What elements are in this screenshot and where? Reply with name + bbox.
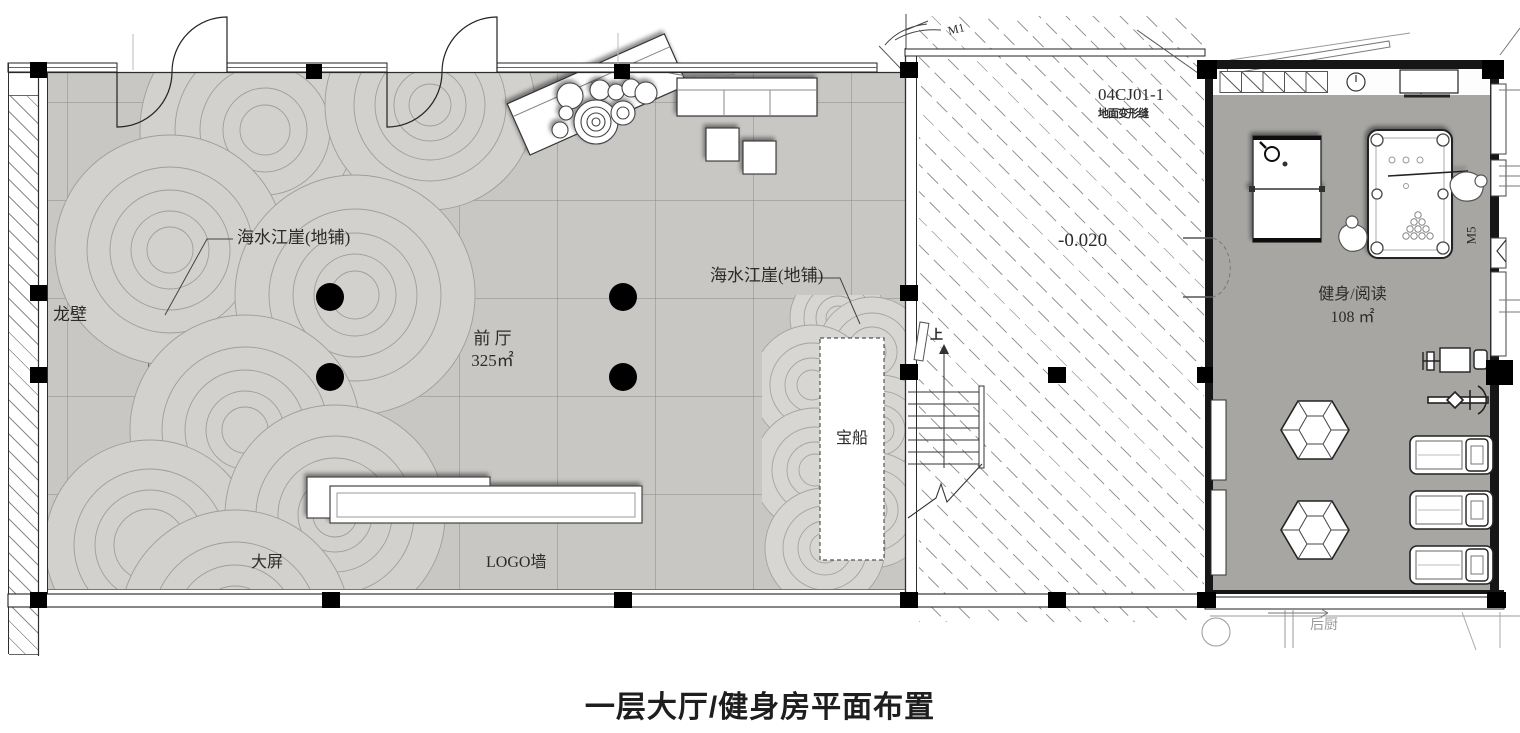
treasure-boat-label: 宝船	[820, 430, 884, 448]
logo-wall-label: LOGO墙	[486, 554, 546, 572]
detail-note-label: 地面变形缝	[1098, 108, 1148, 121]
pattern-label-right: 海水江崖(地铺)	[710, 266, 823, 286]
pingpong-table	[1249, 136, 1325, 242]
drawing-title: 一层大厅/健身房平面布置	[0, 691, 1520, 726]
pattern-label-left: 海水江崖(地铺)	[237, 228, 350, 248]
lobby-name-label: 前 厅	[430, 329, 555, 349]
person-standing	[1339, 216, 1367, 251]
person-playing-pool	[1450, 172, 1487, 201]
gym-cabinets	[1211, 400, 1226, 575]
treasure-boat-outline	[820, 338, 884, 560]
stairs-up-label: 上	[930, 328, 943, 343]
exercise-bike	[1428, 386, 1488, 414]
door-mark-m5: M5	[1465, 226, 1480, 244]
lobby-sofa	[507, 34, 817, 155]
treadmill-1	[1410, 436, 1493, 474]
treadmill-3	[1410, 546, 1493, 584]
bookshelf	[1220, 72, 1328, 93]
hex-table-2	[1281, 501, 1349, 559]
reception-desk	[307, 477, 642, 523]
kitchen-label: 后厨	[1310, 618, 1338, 634]
big-screen-label: 大屏	[251, 554, 283, 572]
kitchen-fragments	[1202, 609, 1520, 650]
floor-plan-drawing: 海水江崖(地铺) 龙壁 前 厅 325㎡ 海水江崖(地铺) 宝船 大屏 LOGO…	[0, 0, 1520, 733]
weight-bench	[1423, 348, 1487, 372]
treadmill-2	[1410, 491, 1493, 529]
stairs	[908, 322, 984, 518]
lobby-area-label: 325㎡	[430, 351, 555, 371]
detail-code-label: 04CJ01-1	[1098, 85, 1164, 105]
dragon-wall-label: 龙壁	[53, 305, 87, 325]
gym-name-label: 健身/阅读	[1290, 286, 1415, 304]
plan-linework	[0, 0, 1520, 733]
gym-area-label: 108 ㎡	[1290, 309, 1415, 327]
tv-icon	[1400, 70, 1458, 96]
clock-icon	[1347, 73, 1365, 91]
side-tables	[706, 128, 776, 174]
elevation-label: -0.020	[1058, 230, 1107, 252]
hex-table-1	[1281, 401, 1349, 459]
